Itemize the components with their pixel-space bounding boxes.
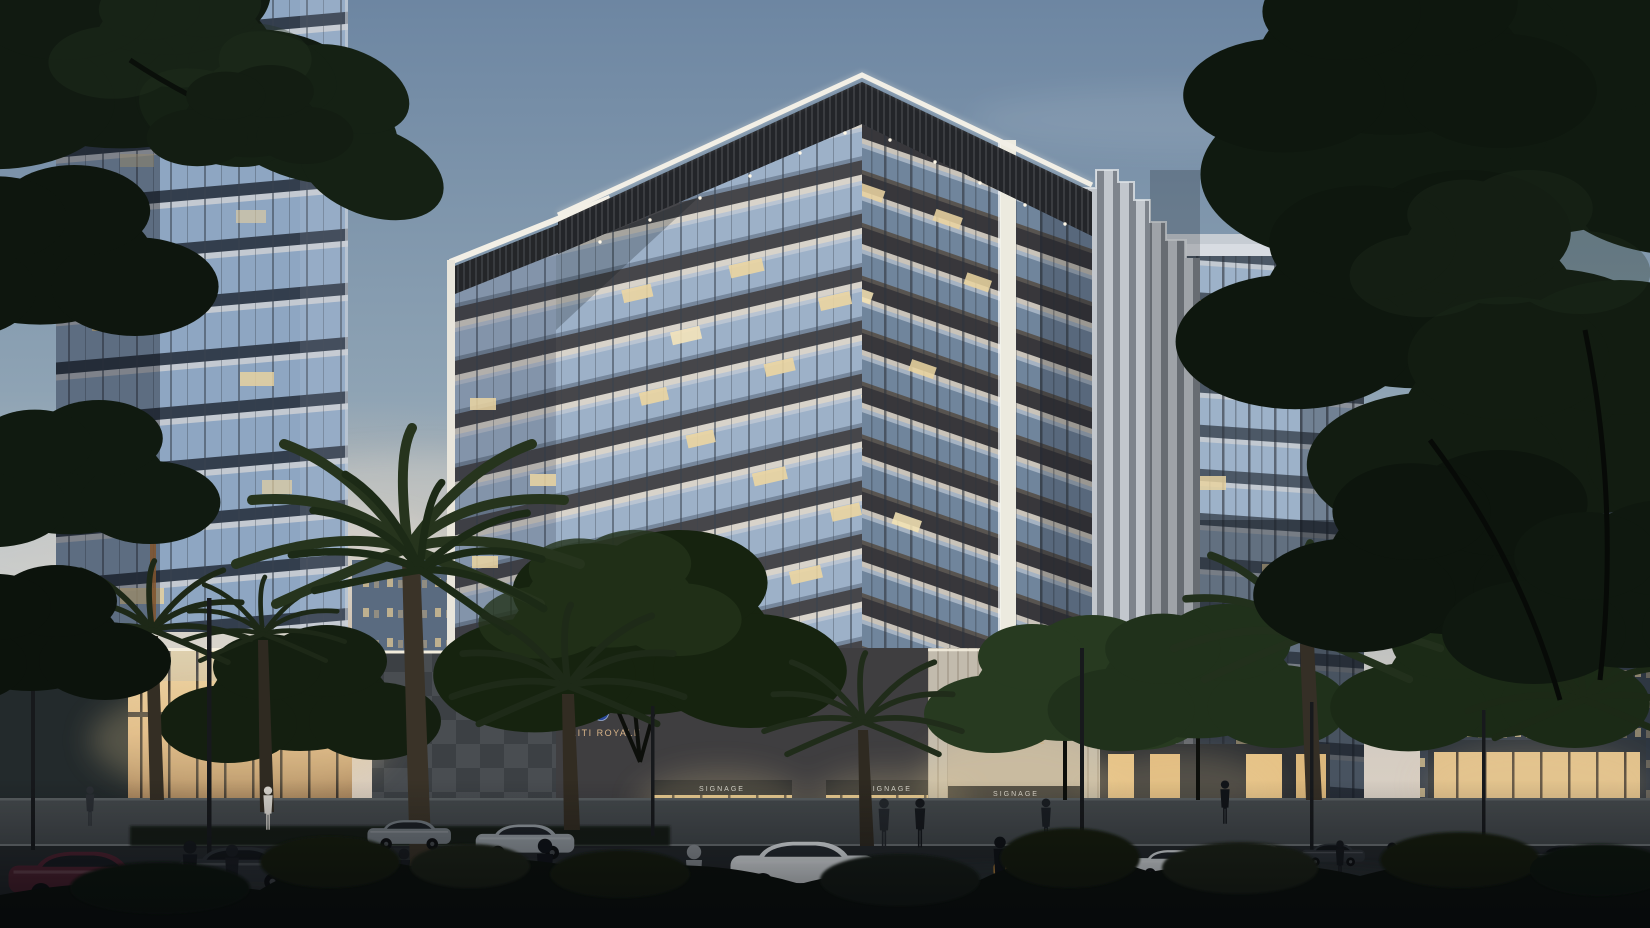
rendering-canvas: SIGNAGE SIGNAGE B BAITI ROYALE RESIDENCE…: [0, 0, 1650, 928]
right-face-frame-column: [1000, 140, 1016, 662]
bottom-vignette: [0, 780, 1650, 928]
scene-svg: SIGNAGE SIGNAGE B BAITI ROYALE RESIDENCE…: [0, 0, 1650, 928]
